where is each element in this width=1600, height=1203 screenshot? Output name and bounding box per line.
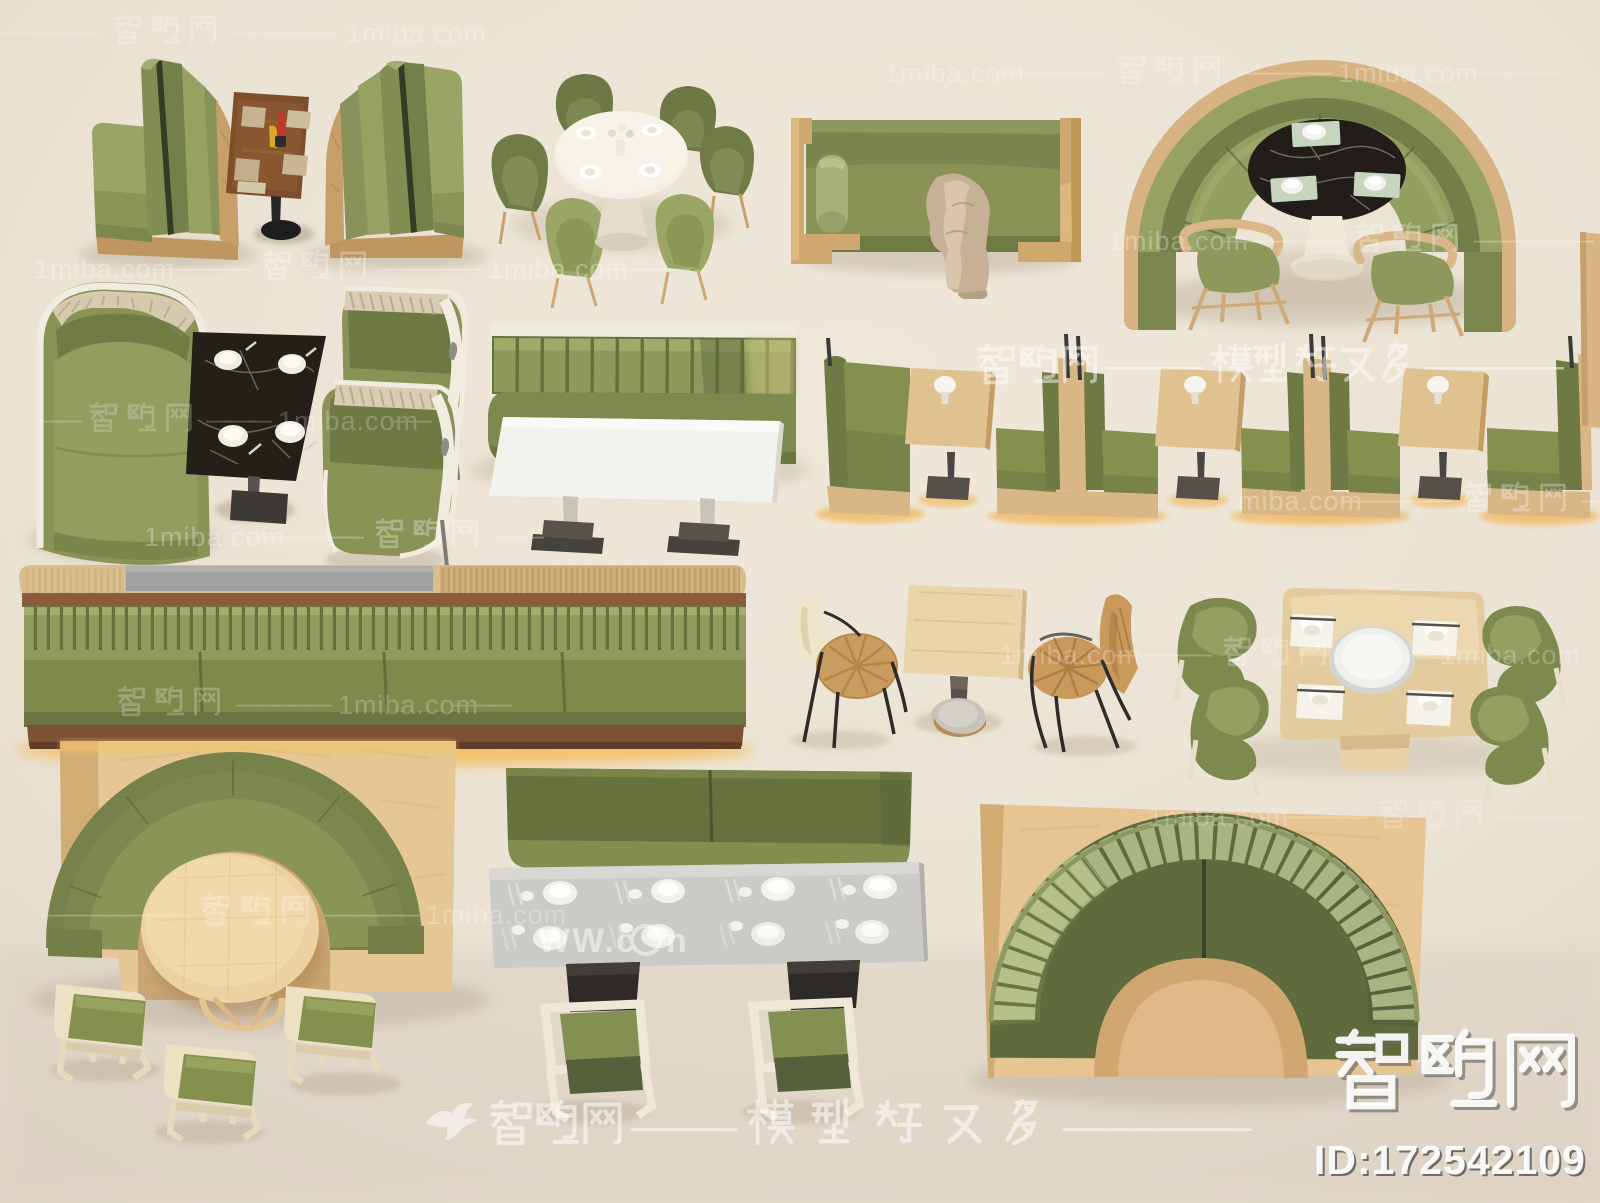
svg-text:—————: ————— [600, 252, 690, 282]
svg-text:—————: ————— [324, 898, 420, 928]
svg-text:——————: —————— [1220, 224, 1344, 254]
svg-text:————: ———— [206, 404, 272, 434]
svg-text:———: ——— [494, 520, 544, 550]
svg-text:————————: ———————— [40, 898, 190, 928]
svg-text:1miba.com: 1miba.com [346, 18, 487, 48]
svg-text:—: — [1582, 484, 1600, 514]
svg-text:——————: —————— [232, 16, 340, 46]
svg-text:——————: —————— [258, 520, 364, 550]
svg-text:———: ——— [452, 688, 512, 718]
svg-text:——————: —————— [1260, 800, 1368, 830]
svg-text:——————: —————— [1452, 56, 1564, 86]
svg-text:—————: ————— [0, 16, 100, 46]
svg-text:————: ———— [630, 1105, 738, 1149]
svg-text:—————: ————— [1498, 800, 1588, 830]
svg-text:1miba.com: 1miba.com [1440, 640, 1581, 670]
svg-text:——————: —————— [1424, 345, 1564, 387]
svg-text:——————: —————— [146, 252, 252, 282]
svg-text:——————: —————— [1340, 484, 1452, 514]
svg-text:ID:172542109: ID:172542109 [1314, 1137, 1586, 1183]
svg-text:——: —— [42, 404, 82, 434]
svg-text:————: ———— [1106, 345, 1204, 387]
svg-text:n: n [666, 922, 687, 960]
svg-text:——————: —————— [1474, 224, 1594, 254]
svg-text:—————: ————— [236, 688, 332, 718]
svg-text:———————: ——————— [1062, 1105, 1252, 1149]
svg-text:—————: ————— [1238, 56, 1332, 86]
svg-text:——————: —————— [1112, 638, 1212, 668]
svg-text:——————: —————— [996, 56, 1108, 86]
svg-text:—————: ————— [1342, 638, 1434, 668]
svg-text:——: —— [392, 404, 432, 434]
svg-text:——————: —————— [382, 252, 482, 282]
svg-text:WW.c: WW.c [538, 922, 637, 960]
